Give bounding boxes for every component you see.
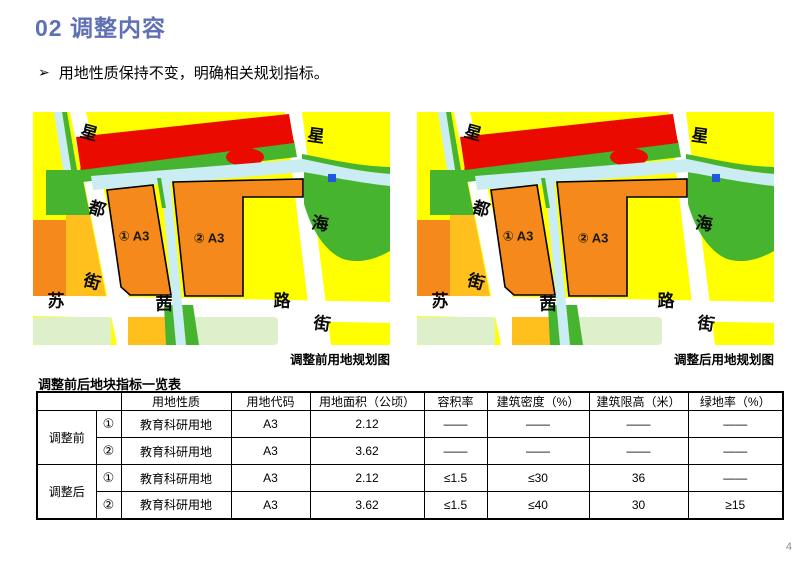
- cell-code: A3: [231, 411, 310, 438]
- cell-height: ——: [589, 411, 688, 438]
- parcel-1-label: ① A3: [119, 230, 150, 243]
- cell-code: A3: [231, 492, 310, 519]
- cell-area: 3.62: [310, 492, 424, 519]
- cell-far: ——: [424, 438, 487, 465]
- cell-green: ——: [688, 438, 783, 465]
- parcel-1-label: ① A3: [503, 230, 534, 243]
- table-row: ② 教育科研用地 A3 3.62 ≤1.5 ≤40 30 ≥15: [37, 492, 783, 519]
- group-label-after: 调整后: [37, 465, 96, 519]
- parcel-2-label: ② A3: [578, 232, 609, 245]
- bullet-line: ➢ 用地性质保持不变，明确相关规划指标。: [38, 62, 329, 83]
- cell-nature: 教育科研用地: [121, 465, 231, 492]
- cell-green: ——: [688, 411, 783, 438]
- indicator-table: 用地性质 用地代码 用地面积（公顷） 容积率 建筑密度（%） 建筑限高（米） 绿…: [36, 391, 784, 520]
- header-blank: [37, 392, 121, 411]
- road-label: 街: [312, 314, 331, 333]
- cell-green: ≥15: [688, 492, 783, 519]
- parcel-2-label: ② A3: [194, 232, 225, 245]
- table-row: 调整后 ① 教育科研用地 A3 2.12 ≤1.5 ≤30 36 ——: [37, 465, 783, 492]
- cell-num: ①: [96, 411, 121, 438]
- table-row: 调整前 ① 教育科研用地 A3 2.12 —— —— —— ——: [37, 411, 783, 438]
- cell-density: ≤30: [487, 465, 589, 492]
- cell-density: ——: [487, 411, 589, 438]
- header-height-limit: 建筑限高（米）: [589, 392, 688, 411]
- page-number: 4: [786, 541, 792, 553]
- cell-green: ——: [688, 465, 783, 492]
- header-green-rate: 绿地率（%）: [688, 392, 783, 411]
- group-label-before: 调整前: [37, 411, 96, 465]
- header-land-code: 用地代码: [231, 392, 310, 411]
- map-before-svg: [33, 112, 390, 345]
- road-label: 茜: [156, 296, 173, 313]
- cell-far: ——: [424, 411, 487, 438]
- bullet-text: 用地性质保持不变，明确相关规划指标。: [59, 62, 329, 83]
- cell-area: 3.62: [310, 438, 424, 465]
- cell-area: 2.12: [310, 465, 424, 492]
- map-after-caption: 调整后用地规划图: [417, 349, 774, 368]
- cell-code: A3: [231, 438, 310, 465]
- cell-nature: 教育科研用地: [121, 492, 231, 519]
- road-label: 路: [658, 293, 675, 310]
- map-after: 星 都 街 星 海 街 苏 茜 路 ① A3 ② A3: [417, 112, 774, 345]
- header-density: 建筑密度（%）: [487, 392, 589, 411]
- road-label: 星: [690, 126, 709, 145]
- header-far: 容积率: [424, 392, 487, 411]
- cell-density: ≤40: [487, 492, 589, 519]
- map-after-svg: [417, 112, 774, 345]
- cell-code: A3: [231, 465, 310, 492]
- cell-height: ——: [589, 438, 688, 465]
- road-label: 海: [694, 214, 713, 233]
- road-label: 茜: [540, 296, 557, 313]
- page-title: 02 调整内容: [35, 9, 166, 43]
- road-label: 海: [310, 214, 329, 233]
- cell-height: 36: [589, 465, 688, 492]
- map-before: 星 都 街 星 海 街 苏 茜 路 ① A3 ② A3: [33, 112, 390, 345]
- cell-height: 30: [589, 492, 688, 519]
- bullet-arrow-icon: ➢: [38, 64, 50, 81]
- map-before-caption: 调整前用地规划图: [33, 349, 390, 368]
- road-label: 街: [696, 314, 715, 333]
- cell-nature: 教育科研用地: [121, 438, 231, 465]
- cell-area: 2.12: [310, 411, 424, 438]
- cell-num: ①: [96, 465, 121, 492]
- road-label: 苏: [432, 293, 449, 310]
- slide: 02 调整内容 ➢ 用地性质保持不变，明确相关规划指标。 星 都 街 星 海 街…: [0, 0, 800, 566]
- table-row: ② 教育科研用地 A3 3.62 —— —— —— ——: [37, 438, 783, 465]
- road-label: 星: [306, 126, 325, 145]
- cell-far: ≤1.5: [424, 465, 487, 492]
- cell-nature: 教育科研用地: [121, 411, 231, 438]
- header-land-nature: 用地性质: [121, 392, 231, 411]
- table-header-row: 用地性质 用地代码 用地面积（公顷） 容积率 建筑密度（%） 建筑限高（米） 绿…: [37, 392, 783, 411]
- road-label: 路: [274, 293, 291, 310]
- road-label: 苏: [48, 293, 65, 310]
- cell-num: ②: [96, 438, 121, 465]
- cell-far: ≤1.5: [424, 492, 487, 519]
- cell-density: ——: [487, 438, 589, 465]
- header-land-area: 用地面积（公顷）: [310, 392, 424, 411]
- cell-num: ②: [96, 492, 121, 519]
